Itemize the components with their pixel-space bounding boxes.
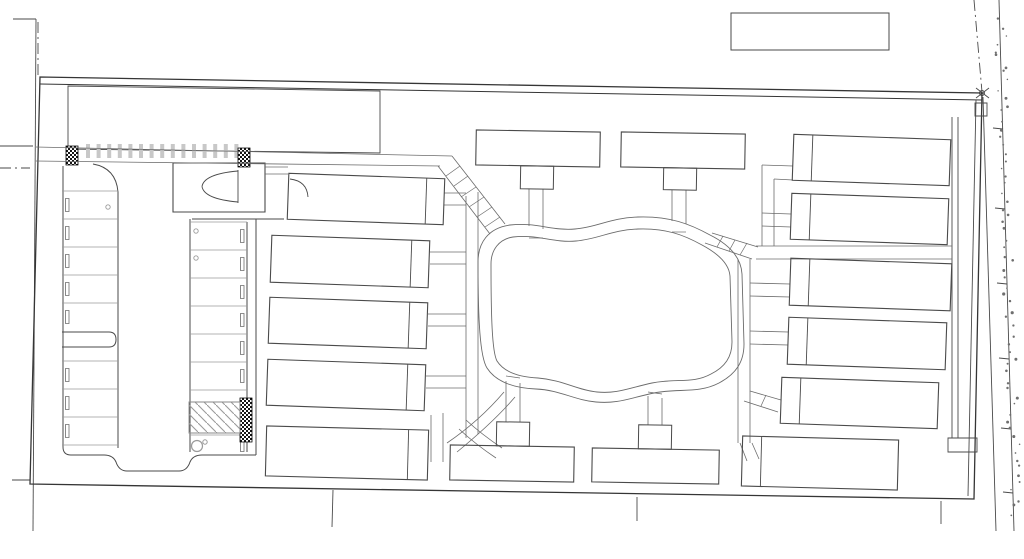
wheel-stop-west — [66, 199, 70, 212]
stipple-dot — [1002, 292, 1005, 295]
building-outline — [476, 130, 601, 167]
walkway-curve — [459, 429, 496, 458]
east-buffer-pad — [948, 438, 977, 452]
stipple-dot — [1000, 109, 1002, 111]
walkway-joint-tick — [740, 243, 747, 255]
wheel-stop-east — [241, 286, 245, 299]
courtyard-loop-path — [478, 217, 744, 402]
stipple-dot — [1018, 464, 1020, 466]
walkway-joint-tick — [477, 207, 492, 217]
northwest-reserve-rect — [68, 86, 380, 153]
building-endcap-line — [408, 302, 410, 348]
stipple-dot — [1002, 28, 1004, 30]
building-outline — [790, 193, 949, 244]
stipple-dot — [1004, 175, 1006, 177]
walkway-edge — [762, 165, 793, 166]
road-edge-line — [332, 490, 333, 527]
light-pole-icon — [106, 205, 110, 209]
stipple-dot — [1004, 276, 1006, 278]
building-east-column — [741, 436, 898, 490]
site-plan-drawing — [0, 0, 1024, 559]
wheel-stop-west — [66, 311, 70, 324]
stipple-dot — [1013, 336, 1015, 338]
walkway-edge — [750, 283, 790, 284]
stipple-dot — [1017, 500, 1019, 502]
stipple-dot — [1011, 259, 1014, 262]
building-endcap-line — [808, 259, 810, 306]
building-endcap-line — [425, 178, 427, 224]
walkway-joint-tick — [761, 395, 766, 406]
walkway-joint-tick — [485, 217, 500, 227]
buildings-layer — [265, 130, 951, 490]
road-centerline — [974, 0, 982, 92]
building-endcap-line — [760, 436, 761, 486]
stipple-dot — [1011, 311, 1014, 314]
stipple-dot — [1001, 221, 1004, 224]
walkway-joint-tick — [469, 197, 484, 207]
wheel-stop-west — [66, 255, 70, 268]
offsite-building-outline — [731, 13, 889, 50]
building-endcap-line — [806, 318, 808, 365]
stipple-dot — [1005, 316, 1007, 318]
stipple-dot — [995, 52, 997, 54]
boundary-inner-line — [40, 84, 982, 100]
dark-hatch-pad — [66, 146, 78, 165]
building-east-column — [792, 134, 951, 185]
walkway-edge — [774, 179, 793, 180]
stipple-dot — [995, 53, 998, 56]
stipple-dot — [1016, 460, 1018, 462]
walkway-edge — [750, 296, 790, 297]
accessible-aisle-hatch — [189, 402, 240, 433]
building-outline — [265, 426, 428, 480]
wheel-stop-east — [241, 230, 245, 243]
accessible-parking-icon — [192, 441, 203, 452]
building-entry-door-swing — [290, 179, 308, 197]
building-north-row — [475, 130, 600, 190]
building-endcap-line — [799, 378, 801, 424]
stipple-dot — [997, 90, 998, 91]
road-edge-line — [999, 0, 1014, 531]
stipple-dot — [1007, 382, 1009, 384]
stipple-dot — [1009, 414, 1011, 416]
clubhouse-door-swing — [202, 187, 238, 203]
stipple-dot — [1006, 288, 1007, 289]
stipple-dot — [1008, 343, 1010, 345]
building-entry-porch — [496, 422, 529, 447]
roads-layer — [0, 0, 1014, 531]
stipple-dot — [1003, 227, 1006, 230]
building-outline — [621, 132, 746, 169]
wheel-stop-west — [66, 283, 70, 296]
stipple-dot — [1005, 67, 1008, 70]
walkway-edge — [750, 331, 788, 332]
building-entry-porch — [520, 166, 553, 190]
walkway-edge — [438, 166, 490, 234]
building-west-column — [287, 173, 445, 224]
walkway-joint-tick — [717, 236, 723, 247]
stipple-dot — [997, 44, 999, 46]
wheel-stop-west — [66, 227, 70, 240]
stipple-dot — [1006, 201, 1009, 204]
wheel-stop-west — [66, 397, 70, 410]
parking-curb — [63, 447, 256, 471]
building-outline — [450, 445, 575, 482]
stipple-dot — [1002, 209, 1004, 211]
gravel-stipple-texture — [995, 17, 1021, 516]
walkway-edge — [750, 344, 788, 345]
stipple-dot — [1016, 397, 1019, 400]
building-endcap-line — [406, 364, 408, 410]
site-plan-canvas — [0, 0, 1024, 559]
stipple-dot — [1015, 452, 1017, 454]
loop-path-inner-edge — [491, 229, 732, 392]
building-west-column — [268, 297, 428, 348]
wheel-stop-east — [241, 342, 245, 355]
walkway-joint-tick — [461, 187, 476, 197]
clubhouse-door-swing — [202, 171, 238, 187]
stipple-dot — [1009, 427, 1012, 430]
building-outline — [287, 173, 445, 224]
building-east-column — [787, 317, 947, 369]
stipple-dot — [997, 17, 999, 19]
building-outline — [270, 235, 430, 287]
stipple-dot — [1004, 256, 1006, 258]
stipple-dot — [1006, 421, 1009, 424]
building-outline — [787, 317, 947, 369]
road-edge-line — [999, 358, 1009, 359]
stipple-dot — [1004, 182, 1006, 184]
wheel-stop-west — [66, 369, 70, 382]
stipple-dot — [1002, 70, 1004, 72]
building-west-column — [270, 235, 430, 287]
building-south-row — [450, 421, 575, 482]
building-south-row — [592, 424, 720, 484]
stipple-dot — [1005, 370, 1008, 373]
stipple-dot — [1006, 105, 1009, 108]
building-east-column — [790, 193, 949, 244]
stipple-dot — [1002, 269, 1005, 272]
road-edge-line — [995, 208, 1005, 209]
building-outline — [780, 377, 939, 428]
building-east-column — [789, 258, 952, 311]
stipple-dot — [1006, 387, 1008, 389]
stipple-dot — [1006, 35, 1008, 37]
building-outline — [268, 297, 428, 348]
stipple-dot — [1007, 214, 1010, 217]
walkway-edge — [740, 443, 747, 461]
stipple-dot — [1009, 300, 1011, 302]
stipple-dot — [1005, 97, 1008, 100]
stipple-dot — [1012, 435, 1015, 438]
walkway-joint-tick — [729, 240, 735, 251]
stipple-dot — [1001, 168, 1003, 170]
stipple-dot — [1012, 324, 1014, 326]
road-edge-line — [997, 283, 1007, 284]
stipple-dot — [1002, 144, 1004, 146]
stipple-dot — [1003, 246, 1005, 248]
building-outline — [789, 258, 952, 311]
stipple-dot — [1001, 121, 1003, 123]
stipple-dot — [1010, 515, 1012, 517]
building-endcap-line — [407, 430, 408, 480]
building-outline — [792, 134, 951, 185]
building-east-column — [780, 377, 939, 428]
building-entry-porch — [663, 168, 696, 191]
building-endcap-line — [811, 135, 813, 181]
wheel-stop-east — [241, 314, 245, 327]
walkway-edge — [762, 226, 791, 227]
clubhouse-outline — [173, 163, 265, 212]
walkway-joint-tick — [454, 176, 468, 186]
stipple-dot — [1009, 351, 1011, 353]
stipple-dot — [999, 136, 1001, 138]
building-entry-porch — [638, 425, 671, 450]
building-endcap-line — [410, 240, 412, 287]
stipple-dot — [1005, 153, 1007, 155]
building-endcap-line — [809, 194, 811, 240]
dark-hatch-pad — [238, 148, 250, 167]
dark-hatch-pad — [240, 398, 252, 442]
stipple-dot — [1019, 481, 1021, 483]
walkway-edge — [744, 401, 778, 412]
walkway-edge — [762, 213, 791, 214]
stipple-dot — [1019, 444, 1021, 446]
wheel-stop-west — [66, 425, 70, 438]
stipple-dot — [1005, 240, 1007, 242]
parking-curb — [62, 332, 116, 347]
stipple-dot — [1005, 160, 1007, 162]
stipple-dot — [1000, 129, 1003, 132]
walkway-joint-tick — [506, 376, 520, 378]
stipple-dot — [1010, 489, 1012, 491]
building-west-column — [266, 359, 426, 410]
building-outline — [741, 436, 898, 490]
accessible-parking-icon — [203, 440, 207, 444]
stipple-dot — [1001, 193, 1003, 195]
building-north-row — [620, 132, 745, 191]
light-pole-icon — [194, 229, 198, 233]
wheel-stop-east — [241, 258, 245, 271]
stipple-dot — [1014, 358, 1017, 361]
building-west-column — [265, 426, 428, 480]
stipple-dot — [1007, 363, 1009, 365]
building-outline — [266, 359, 426, 410]
stipple-dot — [1014, 403, 1016, 405]
walkway-joint-tick — [446, 166, 460, 176]
light-pole-icon — [194, 256, 198, 260]
stipple-dot — [1017, 474, 1020, 477]
stipple-dot — [1007, 79, 1009, 81]
road-edge-line — [1003, 492, 1013, 493]
property-boundary-layer — [30, 13, 987, 499]
building-outline — [592, 448, 720, 484]
wheel-stop-east — [241, 370, 245, 383]
stipple-dot — [1012, 503, 1015, 506]
property-boundary — [30, 77, 982, 499]
road-edge-line — [983, 97, 996, 531]
walkway-edge — [752, 443, 759, 459]
